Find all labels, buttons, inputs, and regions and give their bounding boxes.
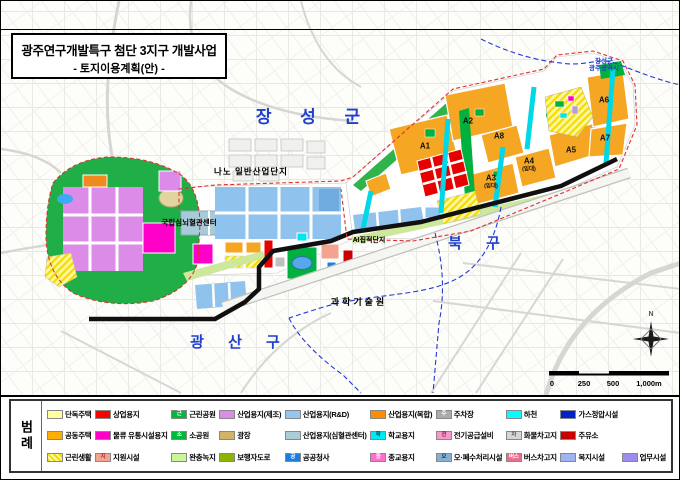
block-label-a6: A6 bbox=[599, 97, 609, 106]
legend-item-label: 산업용지(심혈관센터) bbox=[303, 430, 367, 441]
legend-swatch bbox=[285, 431, 301, 440]
legend-item: 가스정압시설 bbox=[560, 409, 618, 420]
legend-item-label: 산업용지(복합) bbox=[388, 409, 432, 420]
admin-boundary-label: 장성군 광주광역시 bbox=[589, 58, 619, 72]
legend-swatch bbox=[622, 453, 638, 462]
block-label-a7: A7 bbox=[600, 135, 610, 144]
legend-item-label: 산업용지(R&D) bbox=[303, 409, 349, 420]
logistics-zone bbox=[143, 223, 175, 253]
region-label-gwangsan-gu: 광 산 구 bbox=[180, 335, 290, 352]
legend-swatch bbox=[560, 431, 576, 440]
legend-box: 범례 단독주택상업용지근근린공원산업용지(제조)산업용지(R&D)산업용지(복합… bbox=[9, 399, 673, 473]
legend-swatch: 버스 bbox=[506, 453, 522, 462]
legend-item: 오오·폐수처리시설 bbox=[436, 452, 502, 463]
pond bbox=[57, 194, 73, 204]
legend-item: 주주차장 bbox=[436, 409, 502, 420]
legend-swatch bbox=[95, 410, 111, 419]
legend-item-label: 주차장 bbox=[454, 409, 474, 420]
legend-item-label: 화물차고지 bbox=[524, 430, 557, 441]
legend-item-label: 근린공원 bbox=[189, 409, 215, 420]
legend-item-label: 지원시설 bbox=[113, 452, 139, 463]
legend-item-label: 전기공급설비 bbox=[454, 430, 494, 441]
legend-item: 완충녹지 bbox=[171, 452, 215, 463]
legend-item: 종종교용지 bbox=[370, 452, 432, 463]
legend-item: 버스버스차고지 bbox=[506, 452, 557, 463]
map-title-box: 광주연구개발특구 첨단 3지구 개발사업 - 토지이용계획(안) - bbox=[11, 33, 227, 79]
legend-item: 산업용지(제조) bbox=[219, 409, 281, 420]
block-label-a1: A1 bbox=[420, 143, 430, 152]
block-label-a4-sub: (임대) bbox=[522, 166, 536, 172]
legend-swatch bbox=[219, 431, 235, 440]
legend-title: 범례 bbox=[11, 401, 42, 471]
region-label-jangseong-gun: 장 성 군 bbox=[244, 109, 372, 128]
legend-item-label: 주유소 bbox=[578, 430, 598, 441]
site-label-nano-industrial-complex: 나노 일반산업단지 bbox=[214, 167, 288, 176]
legend-swatch: 전 bbox=[436, 431, 452, 440]
legend-swatch: 학 bbox=[370, 431, 386, 440]
legend-item-label: 학교용지 bbox=[388, 430, 414, 441]
legend-item: 하천 bbox=[506, 409, 557, 420]
legend-item: 공동주택 bbox=[47, 430, 91, 441]
legend-item-label: 공공청사 bbox=[303, 452, 329, 463]
legend-swatch: 공 bbox=[285, 453, 301, 462]
legend-item-label: 업무시설 bbox=[640, 452, 666, 463]
legend-swatch: 지 bbox=[95, 453, 111, 462]
legend-item-label: 오·폐수처리시설 bbox=[454, 452, 502, 463]
admin-boundary-label-line1: 장성군 bbox=[595, 58, 613, 65]
admin-boundary-label-line2: 광주광역시 bbox=[589, 65, 619, 72]
map-neatline bbox=[1, 29, 680, 30]
legend-swatch: 차 bbox=[506, 431, 522, 440]
legend-item-label: 완충녹지 bbox=[189, 452, 215, 463]
legend-item: 복지시설 bbox=[560, 452, 618, 463]
legend-swatch bbox=[47, 453, 63, 462]
legend-item: 보행자도로 bbox=[219, 452, 281, 463]
legend-swatch bbox=[560, 453, 576, 462]
legend-item-label: 종교용지 bbox=[388, 452, 414, 463]
legend-swatch: 소 bbox=[171, 431, 187, 440]
block-label-a5: A5 bbox=[566, 147, 576, 156]
legend-item: 근린생활 bbox=[47, 452, 91, 463]
map-title: 광주연구개발특구 첨단 3지구 개발사업 bbox=[13, 40, 225, 59]
legend-swatch bbox=[219, 453, 235, 462]
land-use-plan-page: 광주연구개발특구 첨단 3지구 개발사업 - 토지이용계획(안) - 장 성 군… bbox=[0, 0, 680, 480]
scale-tick-1000m: 1,000m bbox=[636, 380, 661, 388]
site-label-gist: 과학기술원 bbox=[331, 298, 387, 308]
legend-grid: 단독주택상업용지근근린공원산업용지(제조)산업용지(R&D)산업용지(복합)주주… bbox=[42, 401, 671, 471]
support-facility-zone bbox=[321, 244, 339, 259]
legend-item: 물류 유통시설용지 bbox=[95, 430, 168, 441]
scale-bar bbox=[549, 371, 669, 376]
block-label-a3: A3 (임대) bbox=[484, 175, 498, 190]
legend-swatch bbox=[171, 453, 187, 462]
legend-item: 주유소 bbox=[560, 430, 618, 441]
legend-item-label: 복지시설 bbox=[578, 452, 604, 463]
legend-item: 산업용지(R&D) bbox=[285, 409, 367, 420]
legend-item-label: 가스정압시설 bbox=[578, 409, 618, 420]
legend-item: 광장 bbox=[219, 430, 281, 441]
site-label-cardio-center: 국립심뇌혈관센터 bbox=[161, 219, 216, 227]
legend-item-label: 소공원 bbox=[189, 430, 209, 441]
block-label-a3-sub: (임대) bbox=[484, 183, 498, 189]
legend-item: 지지원시설 bbox=[95, 452, 168, 463]
scale-tick-0: 0 bbox=[550, 380, 554, 388]
legend-item: 근근린공원 bbox=[171, 409, 215, 420]
block-label-a2: A2 bbox=[463, 118, 473, 127]
interchange bbox=[159, 189, 183, 207]
legend-item: 상업용지 bbox=[95, 409, 168, 420]
legend-item-label: 하천 bbox=[524, 409, 537, 420]
legend-item-label: 물류 유통시설용지 bbox=[113, 430, 168, 441]
legend-item-label: 보행자도로 bbox=[237, 452, 270, 463]
legend-swatch bbox=[285, 410, 301, 419]
legend-item: 공공공청사 bbox=[285, 452, 367, 463]
legend-swatch bbox=[219, 410, 235, 419]
legend-swatch: 근 bbox=[171, 410, 187, 419]
map-canvas: 광주연구개발특구 첨단 3지구 개발사업 - 토지이용계획(안) - 장 성 군… bbox=[1, 1, 680, 397]
scale-tick-500: 500 bbox=[607, 380, 620, 388]
legend-swatch bbox=[506, 410, 522, 419]
industrial-manufacturing-zone bbox=[63, 187, 143, 271]
legend-swatch bbox=[47, 410, 63, 419]
legend-item-label: 공동주택 bbox=[65, 430, 91, 441]
legend-item: 학학교용지 bbox=[370, 430, 432, 441]
legend-swatch bbox=[95, 431, 111, 440]
block-label-a4-text: A4 bbox=[524, 157, 534, 166]
map-subtitle: - 토지이용계획(안) - bbox=[13, 60, 225, 76]
block-label-a8: A8 bbox=[494, 133, 504, 142]
region-label-buk-gu: 북 구 bbox=[438, 236, 510, 253]
legend-swatch: 오 bbox=[436, 453, 452, 462]
north-arrow-icon bbox=[633, 321, 669, 357]
legend-item-label: 근린생활 bbox=[65, 452, 91, 463]
legend-swatch bbox=[370, 410, 386, 419]
legend-swatch bbox=[560, 410, 576, 419]
legend-item-label: 광장 bbox=[237, 430, 250, 441]
legend-item-label: 버스차고지 bbox=[524, 452, 557, 463]
legend-item: 소소공원 bbox=[171, 430, 215, 441]
block-label-a3-text: A3 bbox=[486, 174, 496, 183]
legend-item-label: 상업용지 bbox=[113, 409, 139, 420]
legend-item-label: 산업용지(제조) bbox=[237, 409, 281, 420]
block-label-a4: A4 (임대) bbox=[522, 158, 536, 173]
legend-item: 단독주택 bbox=[47, 409, 91, 420]
legend-swatch: 종 bbox=[370, 453, 386, 462]
north-label: N bbox=[648, 311, 653, 319]
legend-item: 차화물차고지 bbox=[506, 430, 557, 441]
legend-item: 전전기공급설비 bbox=[436, 430, 502, 441]
legend-swatch: 주 bbox=[436, 410, 452, 419]
legend-item: 산업용지(복합) bbox=[370, 409, 432, 420]
legend-item-label: 단독주택 bbox=[65, 409, 91, 420]
site-label-ai-cluster: AI집적단지 bbox=[353, 237, 386, 245]
legend-swatch bbox=[47, 431, 63, 440]
legend-item: 산업용지(심혈관센터) bbox=[285, 430, 367, 441]
scale-tick-250: 250 bbox=[578, 380, 591, 388]
legend-item: 업무시설 bbox=[622, 452, 666, 463]
